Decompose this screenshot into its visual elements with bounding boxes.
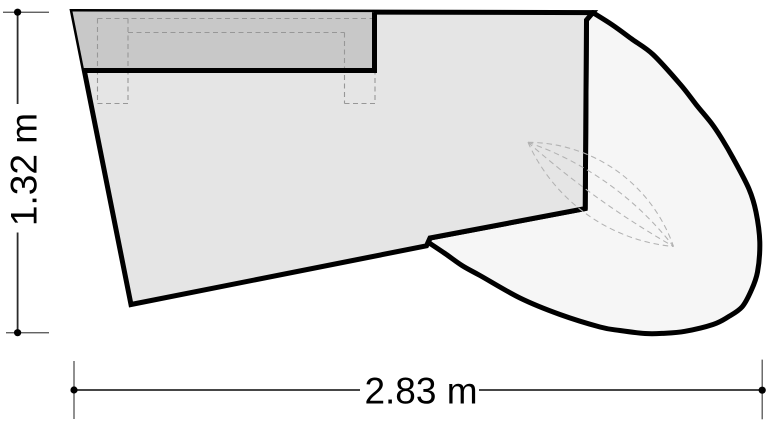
svg-text:2.83 m: 2.83 m [364, 371, 477, 412]
svg-text:1.32 m: 1.32 m [4, 113, 45, 226]
